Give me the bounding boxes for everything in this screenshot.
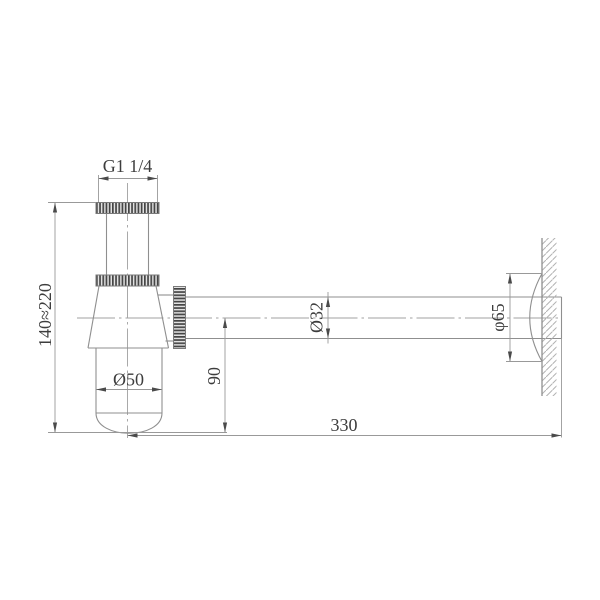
arrow-right <box>552 433 562 437</box>
arrow-right <box>152 387 162 391</box>
arrow-top <box>326 297 330 307</box>
wall-hatching <box>543 238 557 396</box>
outlet-drop-dimension: 90 <box>204 318 227 433</box>
wall <box>542 238 557 396</box>
pipe-diameter-label: Ø32 <box>307 302 327 333</box>
thread-size-dimension: G1 1/4 <box>99 156 158 202</box>
height-range-dimension: 140≈220 <box>35 203 227 433</box>
outlet-knurled-nut <box>174 287 186 349</box>
flange-dome-arc <box>530 274 542 362</box>
arrow-left <box>128 433 138 437</box>
outlet-drop-label: 90 <box>204 367 224 385</box>
arrow-top <box>53 203 57 213</box>
arrow-bottom <box>53 423 57 433</box>
arrow-right <box>148 176 158 180</box>
flange-diameter-dimension: φ65 <box>488 274 542 362</box>
cup-diameter-label: Ø50 <box>113 370 144 390</box>
height-range-label: 140≈220 <box>35 283 55 347</box>
wall-distance-label: 330 <box>331 415 358 435</box>
flange-diameter-label: φ65 <box>488 303 508 331</box>
wall-flange <box>530 274 542 362</box>
bottle-trap-dimension-drawing: G1 1/4 140≈220 Ø50 90 Ø32 φ65 <box>0 0 600 600</box>
cone-left-edge <box>88 286 99 348</box>
thread-size-label: G1 1/4 <box>103 156 153 176</box>
arrow-top <box>508 274 512 284</box>
cup-rounded-bottom <box>96 413 162 433</box>
arrow-bottom <box>223 423 227 433</box>
cup-diameter-dimension: Ø50 <box>96 370 162 392</box>
arrow-bottom <box>326 329 330 339</box>
body-knurled-nut <box>96 275 159 286</box>
arrow-left <box>96 387 106 391</box>
top-knurled-nut <box>96 203 159 214</box>
wall-distance-dimension: 330 <box>128 339 562 438</box>
technical-drawing: G1 1/4 140≈220 Ø50 90 Ø32 φ65 <box>0 0 600 600</box>
arrow-top <box>223 318 227 328</box>
arrow-left <box>99 176 109 180</box>
arrow-bottom <box>508 352 512 362</box>
